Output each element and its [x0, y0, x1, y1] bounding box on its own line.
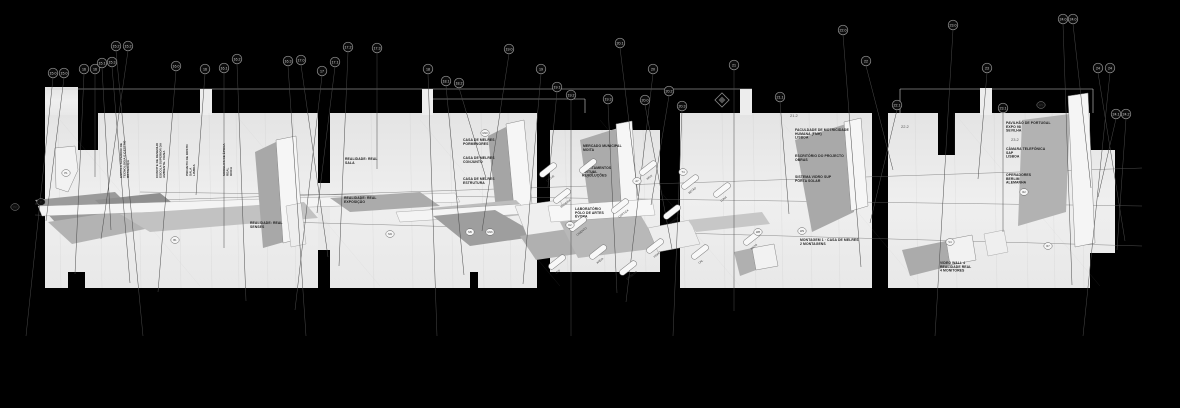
callout-label: 24.2 — [1123, 112, 1130, 116]
field-mark-label: M3 — [388, 232, 392, 236]
printed-number: 21.2 — [790, 113, 799, 118]
callout-label: 18 — [426, 67, 430, 71]
slab-shadow — [1018, 114, 1070, 226]
small-box — [752, 244, 778, 270]
field-mark-label: B1 — [173, 238, 177, 242]
callout: 16.2 — [232, 54, 242, 64]
callout-label: 16 — [93, 67, 97, 71]
callout: 19.1 — [552, 82, 562, 92]
callout-label: 15.3 — [109, 60, 116, 64]
callout-label: 19 — [539, 67, 543, 71]
callout: 15.3 — [107, 57, 117, 67]
leader-line — [1117, 119, 1126, 250]
field-mark: P2 — [11, 204, 19, 211]
field-mark: M10 — [481, 130, 489, 137]
callout: 24 — [1093, 63, 1103, 73]
callout-label: 24 — [1108, 66, 1112, 70]
callout-label: 19.2 — [568, 93, 575, 97]
callout: 19.0 — [504, 44, 514, 54]
field-mark: K2 — [566, 222, 574, 229]
field-mark: WV — [1037, 102, 1045, 109]
callout: 19.2 — [566, 90, 576, 100]
printed-number: 22.2 — [901, 124, 910, 129]
callout: 22.0 — [838, 25, 848, 35]
callout-label: 23.0 — [950, 23, 957, 27]
callout-label: 17.3 — [374, 46, 381, 50]
callout-label: 15.2 — [113, 44, 120, 48]
callout: 22.1 — [892, 100, 902, 110]
callout: 20.1 — [615, 38, 625, 48]
callout: 18 — [423, 64, 433, 74]
field-mark-label: P — [40, 200, 42, 204]
sheet-5-tab — [980, 88, 992, 115]
callout: 17.0 — [296, 55, 306, 65]
callout-label: 16 — [82, 67, 86, 71]
callout: 23.1 — [998, 103, 1008, 113]
field-mark: W9 — [798, 228, 806, 235]
field-mark: M16 — [486, 229, 494, 236]
field-mark: B1 — [171, 237, 179, 244]
callout-label: 24.0 — [1070, 17, 1077, 21]
callout: 24 — [1105, 63, 1115, 73]
callout: 22 — [861, 56, 871, 66]
field-mark: P — [37, 199, 45, 206]
callout: 15.0 — [59, 68, 69, 78]
callout: 15.2 — [123, 41, 133, 51]
field-mark: P1 — [62, 170, 70, 177]
callout-label: 17.1 — [332, 60, 339, 64]
callout: 17.3 — [372, 43, 382, 53]
field-mark-label: M5 — [468, 230, 472, 234]
callout: 20.3 — [677, 101, 687, 111]
callout-label: 23.1 — [1000, 106, 1007, 110]
callout-label: 20 — [651, 67, 655, 71]
callout-label: 17 — [320, 69, 324, 73]
small-box — [984, 230, 1008, 256]
field-mark: A7 — [633, 178, 641, 185]
callout: 15.0 — [48, 68, 58, 78]
callout: 17.1 — [330, 57, 340, 67]
callout-label: 20.1 — [617, 41, 624, 45]
callout: 24.2 — [1121, 109, 1131, 119]
callout-label: 23 — [985, 66, 989, 70]
callout-label: 24.1 — [1113, 112, 1120, 116]
callout: 16.3 — [283, 56, 293, 66]
callout: 19 — [536, 64, 546, 74]
callout-label: 22 — [864, 59, 868, 63]
callout: 16 — [79, 64, 89, 74]
callout-label: 16.2 — [234, 57, 241, 61]
field-mark-label: WV — [1039, 103, 1043, 107]
callout: 21 — [729, 60, 739, 70]
callout-label: 21 — [732, 63, 736, 67]
sheet-1-left-cap — [45, 87, 78, 115]
callout: 17.2 — [343, 42, 353, 52]
callout: 23.0 — [948, 20, 958, 30]
callout-label: 20.3 — [679, 104, 686, 108]
callout: 16.0 — [171, 61, 181, 71]
callout: 16 — [200, 64, 210, 74]
sheet-1-bottom-slot — [68, 272, 85, 288]
callout: 24.1 — [1111, 109, 1121, 119]
callout-label: 22.1 — [894, 103, 901, 107]
architectural-drawing-canvas: REALIDADE: REALSALAREALIDADE: REALEXPOSI… — [0, 0, 1180, 408]
callout-label: 22.0 — [840, 28, 847, 32]
callout-label: 16.0 — [173, 64, 180, 68]
callout-label: 16.3 — [285, 59, 292, 63]
callout-label: 17.0 — [298, 58, 305, 62]
callout-label: 21.1 — [777, 95, 784, 99]
field-mark-label: A7 — [635, 179, 639, 183]
gap-bridge-1 — [318, 183, 330, 250]
field-mark-label: W8 — [756, 230, 760, 234]
callout-label: 16.1 — [221, 66, 228, 70]
field-mark-label: R7 — [1046, 244, 1050, 248]
field-mark-label: W9 — [800, 229, 804, 233]
callout-label: 19.3 — [605, 97, 612, 101]
field-mark-label: K2 — [568, 223, 572, 227]
callout-label: 19.1 — [554, 85, 561, 89]
callout-label: 16 — [203, 67, 207, 71]
callout-label: 15.0 — [50, 71, 57, 75]
callout-label: 15.2 — [125, 44, 132, 48]
callout-label: 15.0 — [61, 71, 68, 75]
field-mark: V4 — [946, 239, 954, 246]
callout-label: 24.0 — [1060, 17, 1067, 21]
sheet-2-bottom-slot — [470, 272, 478, 288]
callout: 19.3 — [603, 94, 613, 104]
callout: 18.1 — [441, 76, 451, 86]
printed-number: 23.2 — [1011, 137, 1020, 142]
callout: 15.1 — [97, 58, 107, 68]
field-mark: M3 — [386, 231, 394, 238]
callout: 17 — [317, 66, 327, 76]
field-mark: W8 — [754, 229, 762, 236]
field-mark: M5 — [466, 229, 474, 236]
sheet-1-tab — [200, 89, 212, 115]
sheet-4-tab — [740, 89, 752, 115]
sheet-2-tab — [422, 89, 433, 115]
field-mark: R7 — [1044, 243, 1052, 250]
callout: 18.2 — [454, 78, 464, 88]
field-mark-label: P2 — [13, 205, 17, 209]
field-mark-label: M10 — [482, 131, 488, 135]
callout-label: 18.2 — [456, 81, 463, 85]
callout: 20.0 — [640, 95, 650, 105]
callout: 23 — [982, 63, 992, 73]
field-mark-label: R2 — [1022, 190, 1026, 194]
callout: 16.1 — [219, 63, 229, 73]
callout: 15.2 — [111, 41, 121, 51]
elevation-drawing: REALIDADE: REALSALAREALIDADE: REALEXPOSI… — [0, 0, 1180, 408]
field-mark-label: M16 — [487, 230, 493, 234]
callout: 20.2 — [664, 86, 674, 96]
callout: 20 — [648, 64, 658, 74]
callout-label: 15.1 — [99, 61, 106, 65]
callout: 21.1 — [775, 92, 785, 102]
callout-label: 18.1 — [443, 79, 450, 83]
callout-label: 24 — [1096, 66, 1100, 70]
field-mark: R2 — [1020, 189, 1028, 196]
callout: 24.0 — [1058, 14, 1068, 24]
callout-label: 20.0 — [642, 98, 649, 102]
callout-label: 20.2 — [666, 89, 673, 93]
field-mark-label: V4 — [948, 240, 952, 244]
callout: 24.0 — [1068, 14, 1078, 24]
sheet-5-top-slot — [938, 113, 955, 155]
field-mark: T4 — [679, 169, 687, 176]
callout-label: 19.0 — [506, 47, 513, 51]
field-mark-label: P1 — [64, 171, 68, 175]
callout-label: 17.2 — [345, 45, 352, 49]
diamond-logo — [715, 93, 729, 107]
